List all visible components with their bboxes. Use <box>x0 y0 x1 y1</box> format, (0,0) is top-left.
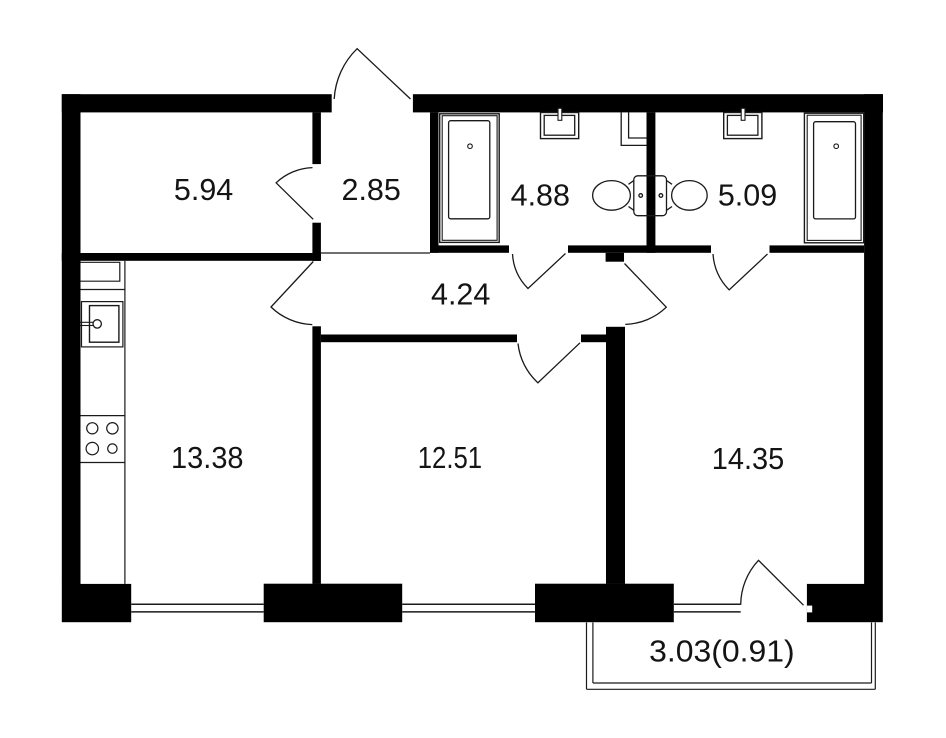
svg-text:14.35: 14.35 <box>712 442 785 476</box>
svg-text:2.85: 2.85 <box>342 173 401 207</box>
svg-text:4.88: 4.88 <box>511 179 570 213</box>
svg-text:3.03(0.91): 3.03(0.91) <box>649 635 795 669</box>
svg-text:5.94: 5.94 <box>174 173 233 207</box>
svg-text:5.09: 5.09 <box>718 179 777 213</box>
svg-text:12.51: 12.51 <box>418 441 482 475</box>
svg-text:4.24: 4.24 <box>431 278 490 312</box>
svg-text:13.38: 13.38 <box>171 441 244 475</box>
